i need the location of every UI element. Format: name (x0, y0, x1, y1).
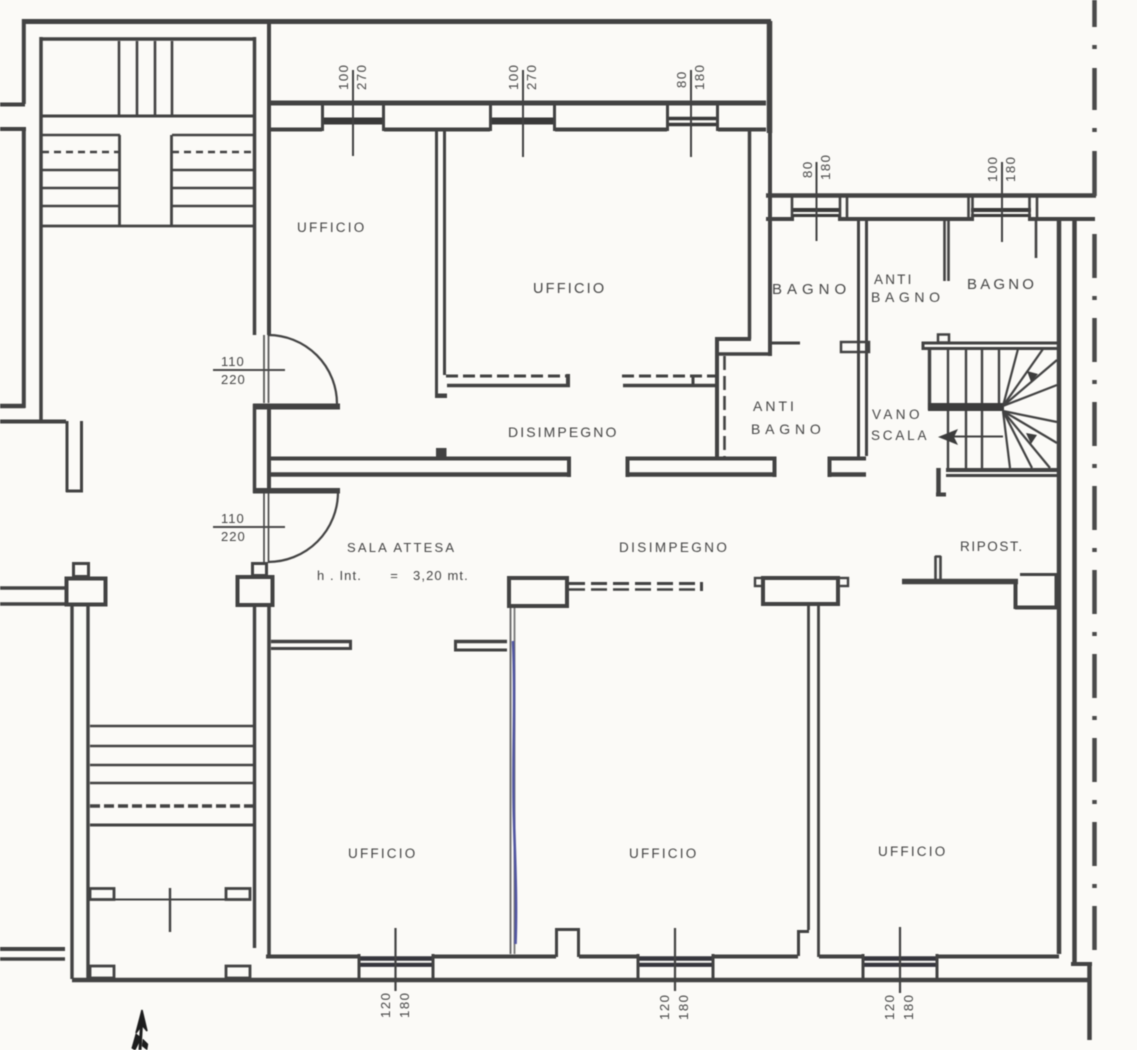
svg-text:100: 100 (336, 63, 351, 90)
svg-text:180: 180 (901, 993, 916, 1020)
svg-text:270: 270 (524, 63, 539, 90)
svg-text:VANO: VANO (872, 407, 923, 422)
svg-text:SALA ATTESA: SALA ATTESA (347, 540, 456, 555)
svg-text:100: 100 (985, 155, 1000, 182)
svg-text:UFFICIO: UFFICIO (533, 281, 606, 297)
svg-text:DISIMPEGNO: DISIMPEGNO (619, 540, 729, 555)
svg-text:80: 80 (674, 70, 689, 88)
svg-text:UFFICIO: UFFICIO (297, 220, 366, 235)
svg-text:180: 180 (676, 993, 691, 1020)
svg-text:UFFICIO: UFFICIO (629, 846, 698, 861)
svg-text:180: 180 (692, 63, 707, 90)
svg-text:120: 120 (882, 993, 897, 1020)
svg-text:110: 110 (221, 354, 245, 369)
svg-text:180: 180 (397, 991, 412, 1018)
svg-text:220: 220 (221, 529, 246, 544)
svg-text:SCALA: SCALA (871, 428, 929, 443)
svg-text:BAGNO: BAGNO (871, 289, 945, 305)
svg-text:80: 80 (800, 160, 815, 178)
svg-text:270: 270 (354, 63, 369, 90)
svg-text:ANTI: ANTI (874, 272, 914, 287)
svg-text:h . Int. = 3,20 mt.: h . Int. = 3,20 mt. (317, 568, 469, 583)
svg-text:UFFICIO: UFFICIO (348, 846, 417, 861)
svg-text:220: 220 (221, 372, 246, 387)
svg-text:RIPOST.: RIPOST. (960, 539, 1024, 554)
svg-text:DISIMPEGNO: DISIMPEGNO (508, 424, 618, 440)
svg-text:ANTI: ANTI (753, 398, 797, 414)
svg-text:UFFICIO: UFFICIO (878, 844, 947, 859)
svg-text:BAGNO: BAGNO (967, 276, 1037, 293)
svg-text:110: 110 (221, 511, 245, 526)
svg-text:120: 120 (378, 991, 393, 1018)
svg-text:BAGNO: BAGNO (772, 281, 851, 298)
svg-text:BAGNO: BAGNO (751, 421, 826, 437)
svg-text:120: 120 (657, 993, 672, 1020)
svg-text:180: 180 (1003, 155, 1018, 182)
svg-text:180: 180 (818, 153, 833, 180)
svg-text:100: 100 (506, 63, 521, 90)
